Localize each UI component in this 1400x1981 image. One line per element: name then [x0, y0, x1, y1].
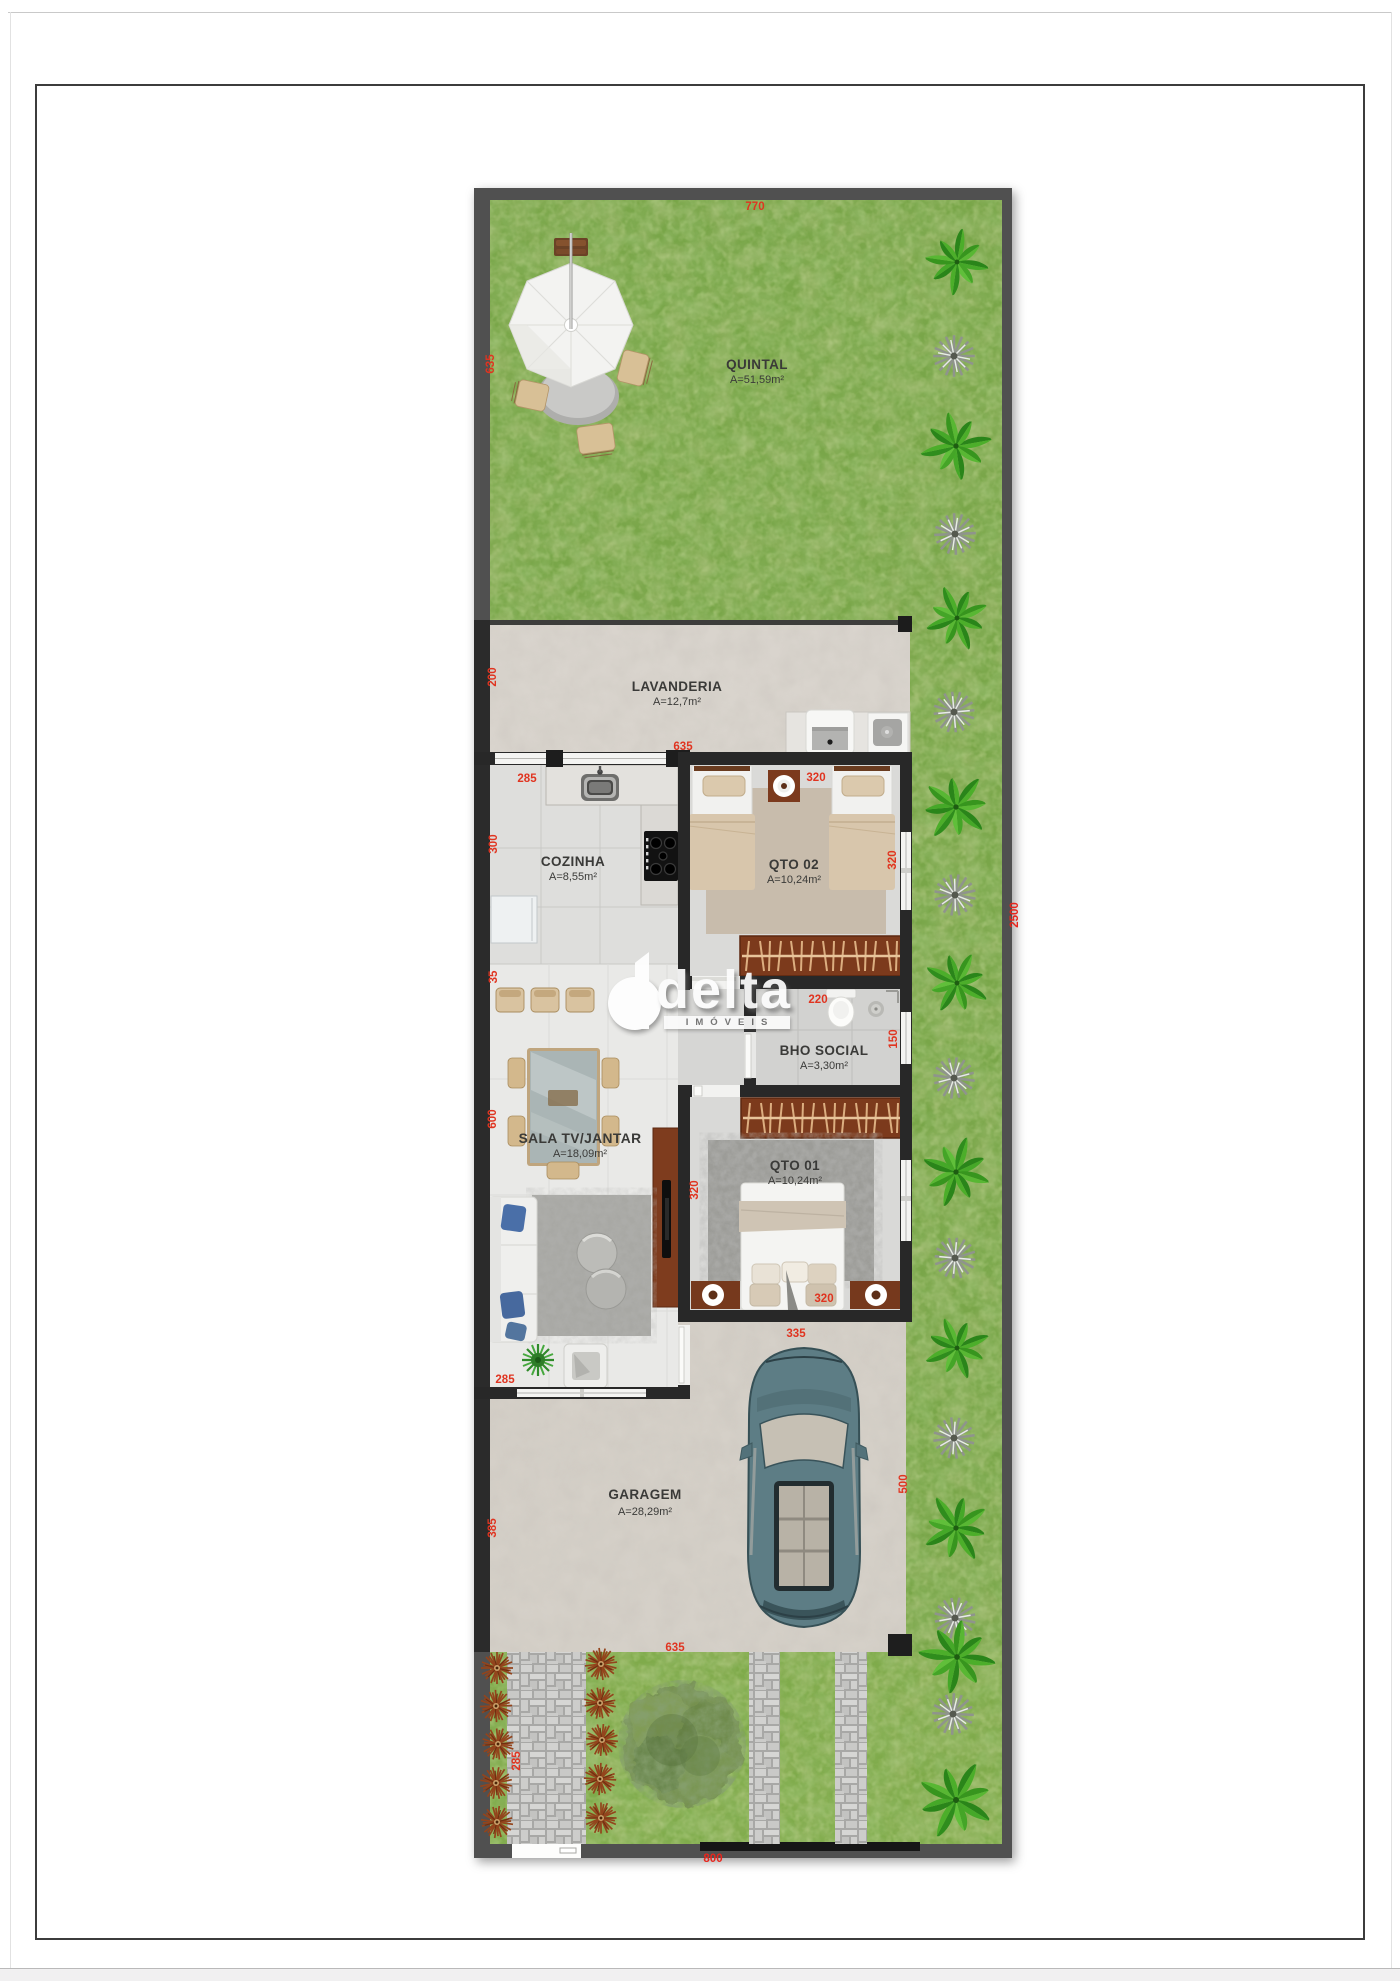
svg-text:635: 635	[665, 1642, 685, 1654]
svg-text:A=8,55m²: A=8,55m²	[549, 871, 597, 883]
svg-text:BHO SOCIAL: BHO SOCIAL	[780, 1043, 869, 1058]
svg-text:600: 600	[487, 1109, 499, 1128]
svg-text:150: 150	[888, 1029, 900, 1048]
svg-text:335: 335	[786, 1328, 806, 1340]
svg-text:A=10,24m²: A=10,24m²	[767, 874, 821, 886]
svg-text:QUINTAL: QUINTAL	[726, 357, 788, 372]
svg-text:200: 200	[487, 667, 499, 686]
svg-text:SALA TV/JANTAR: SALA TV/JANTAR	[519, 1131, 642, 1146]
svg-text:A=12,7m²: A=12,7m²	[653, 696, 701, 708]
svg-text:635: 635	[673, 741, 693, 753]
svg-text:385: 385	[487, 1518, 499, 1538]
svg-text:770: 770	[745, 201, 764, 213]
svg-text:A=3,30m²: A=3,30m²	[800, 1060, 848, 1072]
svg-text:A=28,29m²: A=28,29m²	[618, 1506, 672, 1518]
svg-text:QTO 01: QTO 01	[770, 1158, 820, 1173]
svg-text:LAVANDERIA: LAVANDERIA	[632, 679, 723, 694]
svg-text:A=10,24m²: A=10,24m²	[768, 1175, 822, 1187]
svg-text:300: 300	[488, 834, 500, 853]
svg-text:285: 285	[511, 1751, 523, 1771]
svg-text:635: 635	[485, 354, 497, 374]
svg-text:QTO 02: QTO 02	[769, 857, 819, 872]
svg-text:A=51,59m²: A=51,59m²	[730, 374, 784, 386]
svg-text:500: 500	[898, 1474, 910, 1493]
svg-text:320: 320	[814, 1293, 833, 1305]
svg-text:35: 35	[488, 970, 500, 983]
svg-text:285: 285	[495, 1374, 515, 1386]
svg-text:A=18,09m²: A=18,09m²	[553, 1148, 607, 1160]
svg-text:220: 220	[808, 994, 827, 1006]
svg-text:285: 285	[517, 773, 537, 785]
svg-text:320: 320	[689, 1180, 701, 1199]
svg-text:320: 320	[887, 850, 899, 869]
svg-text:320: 320	[806, 772, 825, 784]
svg-text:GARAGEM: GARAGEM	[608, 1487, 681, 1502]
svg-text:COZINHA: COZINHA	[541, 854, 605, 869]
